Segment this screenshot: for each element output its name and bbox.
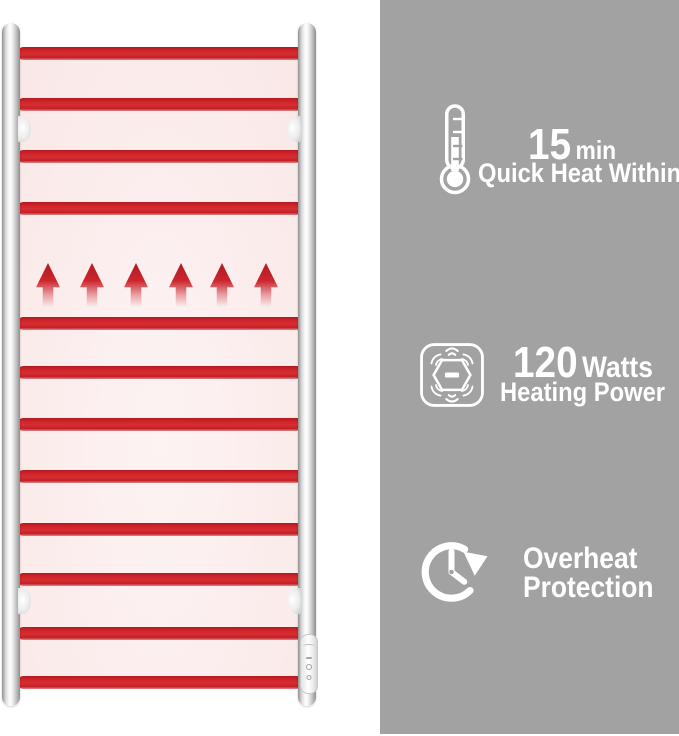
overheat-label-line2: Protection <box>523 573 654 602</box>
product-feature-image: 15 min Quick Heat Within <box>0 0 679 736</box>
towel-bar <box>17 418 303 431</box>
towel-bar <box>17 317 303 330</box>
overheat-label-line1: Overheat <box>523 544 654 573</box>
power-control-panel <box>300 634 318 694</box>
indicator-dot <box>307 675 312 680</box>
towel-bar <box>17 202 303 215</box>
overheat-protection-icon <box>415 533 497 608</box>
towel-bar <box>17 470 303 483</box>
heating-power-label: Heating Power <box>500 379 665 406</box>
features-panel: 15 min Quick Heat Within <box>380 0 679 734</box>
towel-warmer-illustration <box>0 0 380 736</box>
quick-heat-label: Quick Heat Within <box>478 160 679 187</box>
mount-bracket <box>288 588 301 614</box>
towel-bar <box>17 523 303 536</box>
towel-bar <box>17 98 303 111</box>
towel-bar <box>17 150 303 163</box>
mount-bracket <box>288 116 301 142</box>
towel-bar <box>17 573 303 586</box>
towel-bar <box>17 366 303 379</box>
power-button-icon <box>306 664 312 670</box>
control-mark <box>306 657 312 659</box>
towel-bar <box>17 676 303 689</box>
towel-bar <box>17 627 303 640</box>
thermometer-icon <box>438 104 472 196</box>
control-notch <box>303 644 315 648</box>
towel-bar <box>17 47 303 60</box>
heating-power-icon <box>418 341 486 409</box>
